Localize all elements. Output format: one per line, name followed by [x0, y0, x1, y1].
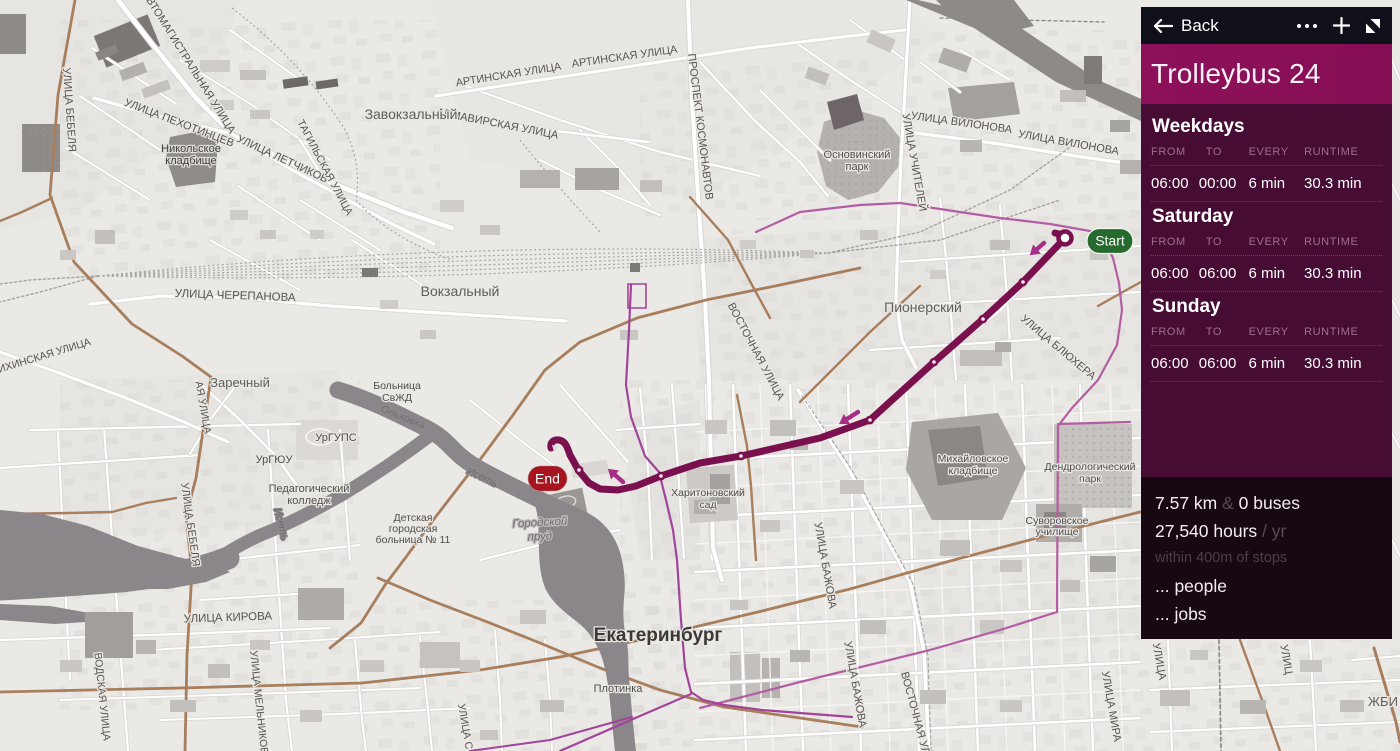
svg-text:парк: парк — [1079, 473, 1101, 485]
svg-text:кладбище: кладбище — [948, 465, 997, 477]
svg-text:Харитоновский: Харитоновский — [671, 487, 745, 499]
svg-text:Дендрологический: Дендрологический — [1045, 461, 1136, 473]
svg-text:УрГЮУ: УрГЮУ — [256, 454, 294, 466]
svg-text:СвЖД: СвЖД — [382, 392, 412, 404]
svg-text:Заречный: Заречный — [210, 375, 270, 390]
svg-text:Вокзальный: Вокзальный — [421, 283, 500, 299]
svg-text:Больница: Больница — [373, 380, 421, 392]
svg-text:Никольское: Никольское — [161, 143, 221, 155]
svg-text:училище: училище — [1036, 526, 1079, 538]
svg-text:пруд: пруд — [527, 530, 552, 543]
svg-text:Плотинка: Плотинка — [594, 683, 644, 695]
svg-text:Start: Start — [1095, 233, 1125, 249]
svg-text:Екатеринбург: Екатеринбург — [594, 625, 723, 646]
svg-text:колледж: колледж — [287, 495, 331, 507]
svg-text:End: End — [535, 471, 560, 487]
svg-text:Пионерский: Пионерский — [884, 299, 962, 315]
svg-text:ЖБИ: ЖБИ — [1368, 694, 1398, 709]
svg-text:сад: сад — [699, 499, 716, 511]
svg-text:Педагогический: Педагогический — [269, 483, 350, 495]
svg-text:больница № 11: больница № 11 — [376, 534, 451, 546]
svg-text:кладбище: кладбище — [165, 155, 216, 167]
svg-text:УрГУПС: УрГУПС — [315, 432, 356, 444]
svg-text:парк: парк — [845, 161, 868, 173]
svg-text:Основинский: Основинский — [824, 149, 891, 161]
svg-text:Завокзальный: Завокзальный — [365, 106, 458, 122]
svg-text:Михайловское: Михайловское — [938, 453, 1009, 465]
